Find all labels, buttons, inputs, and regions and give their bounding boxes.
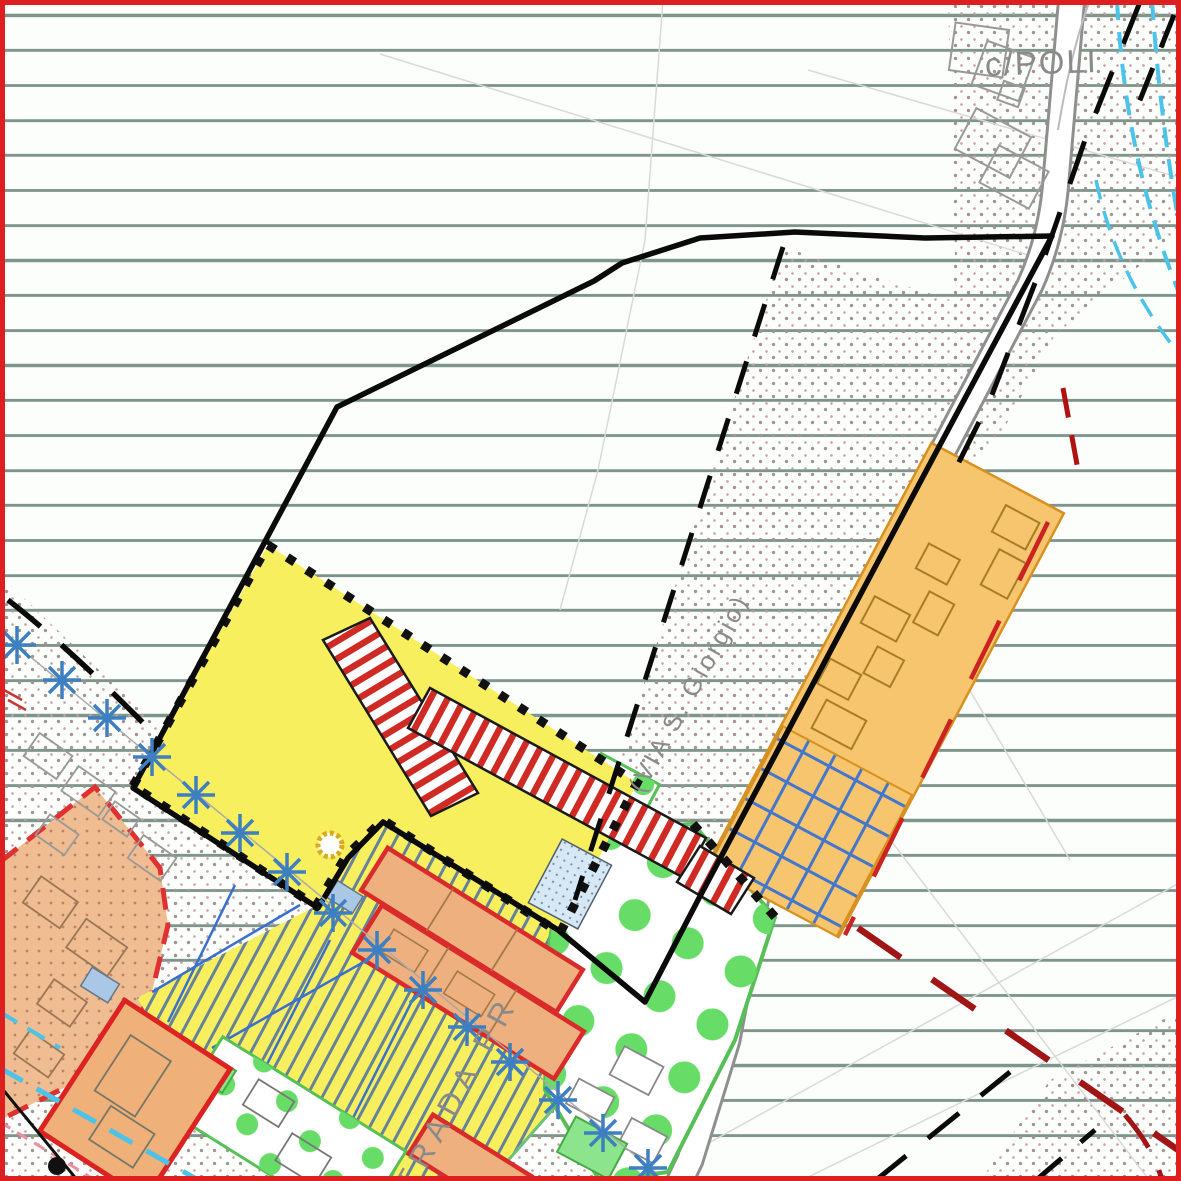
area-label-cpoli: c/POLI bbox=[984, 42, 1098, 84]
tree-symbol bbox=[0, 626, 36, 664]
zone-orange-band bbox=[706, 443, 1064, 937]
map-vector-layer bbox=[0, 0, 1181, 1181]
zoning-map: c/POLI STRADA PR (VIA S. Giorgio) bbox=[0, 0, 1181, 1181]
well-symbol bbox=[318, 833, 342, 857]
